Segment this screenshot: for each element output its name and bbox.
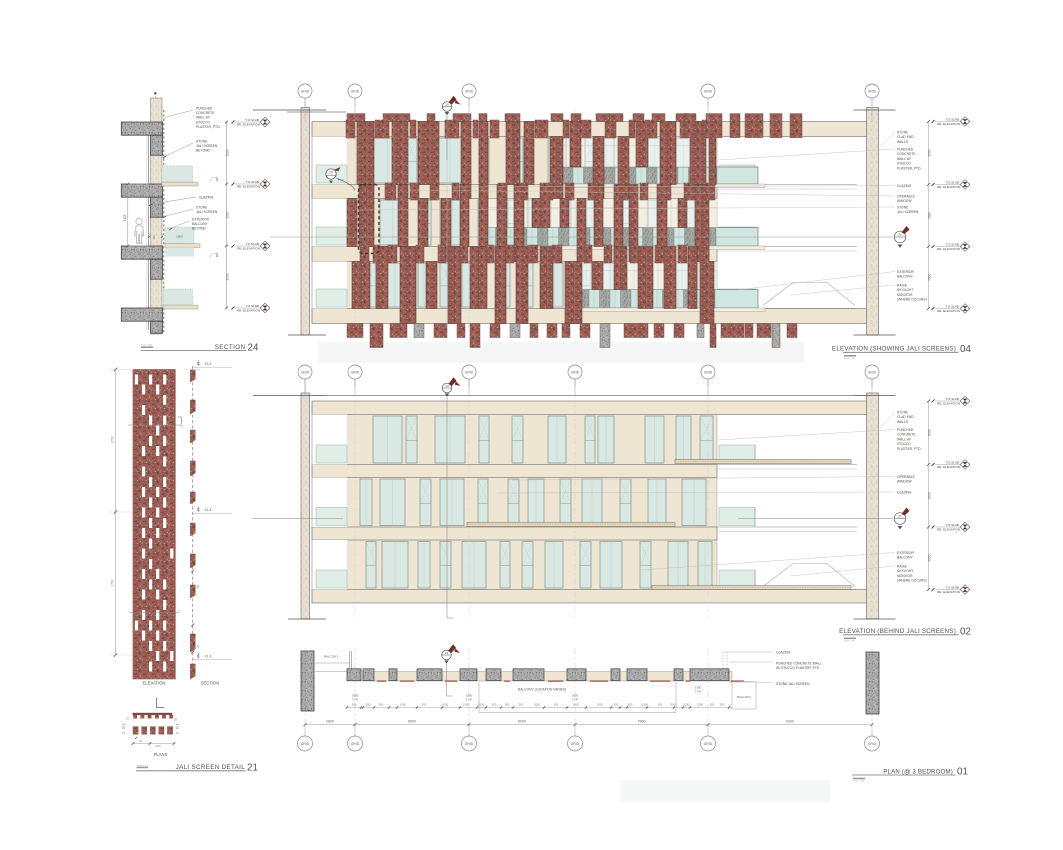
svg-text:PUNCHED: PUNCHED bbox=[196, 107, 213, 111]
svg-text:SKYLIGHT: SKYLIGHT bbox=[897, 288, 913, 292]
svg-text:500: 500 bbox=[519, 703, 524, 707]
svg-text:EXTERIOR: EXTERIOR bbox=[897, 270, 914, 274]
svg-text:349: 349 bbox=[152, 235, 156, 240]
svg-text:GLAZING: GLAZING bbox=[897, 491, 912, 495]
svg-text:RE: ELEVATION: RE: ELEVATION bbox=[937, 590, 960, 594]
svg-text:(WHERE OCCURS): (WHERE OCCURS) bbox=[897, 298, 927, 302]
svg-text:OPERABLE: OPERABLE bbox=[897, 475, 916, 479]
svg-text:500: 500 bbox=[554, 703, 559, 707]
svg-text:GRID: GRID bbox=[351, 89, 360, 93]
svg-text:SECTION: SECTION bbox=[215, 344, 246, 351]
svg-text:GRID: GRID bbox=[351, 370, 360, 374]
svg-text:PLASTER, PTD.: PLASTER, PTD. bbox=[897, 447, 921, 451]
svg-text:21: 21 bbox=[898, 233, 902, 237]
svg-text:(WHERE OCCURS): (WHERE OCCURS) bbox=[897, 579, 927, 583]
svg-text:21: 21 bbox=[898, 515, 902, 519]
svg-text:T.O.SLAB: T.O.SLAB bbox=[945, 242, 959, 246]
svg-text:GRID: GRID bbox=[704, 742, 713, 746]
svg-text:25: 25 bbox=[126, 717, 130, 721]
svg-text:24: 24 bbox=[248, 342, 259, 353]
svg-text:3500: 3500 bbox=[225, 149, 229, 156]
svg-text:O.J.: O.J. bbox=[122, 723, 126, 729]
svg-text:2800: 2800 bbox=[326, 719, 334, 723]
svg-text:500: 500 bbox=[628, 703, 633, 707]
svg-text:24: 24 bbox=[445, 384, 449, 388]
svg-text:1500: 1500 bbox=[463, 703, 469, 707]
svg-text:3500: 3500 bbox=[928, 274, 932, 281]
svg-text:04: 04 bbox=[960, 344, 971, 355]
svg-text:1000: 1000 bbox=[597, 703, 603, 707]
svg-text:BEYOND: BEYOND bbox=[196, 149, 211, 153]
svg-text:3500: 3500 bbox=[928, 212, 932, 219]
svg-text:1500: 1500 bbox=[697, 703, 703, 707]
svg-text:O.J.: O.J. bbox=[176, 723, 180, 729]
svg-text:Scale: 1:50: Scale: 1:50 bbox=[844, 640, 856, 642]
svg-text:T.O.SLAB: T.O.SLAB bbox=[945, 304, 959, 308]
svg-text:01: 01 bbox=[957, 767, 968, 778]
svg-text:500: 500 bbox=[505, 703, 510, 707]
svg-text:T.O.SLAB: T.O.SLAB bbox=[245, 304, 259, 308]
svg-text:W/ STUCCO PLASTER, PTD: W/ STUCCO PLASTER, PTD bbox=[776, 666, 820, 670]
svg-text:GRID: GRID bbox=[571, 742, 580, 746]
svg-text:3500: 3500 bbox=[225, 211, 229, 218]
svg-text:1000: 1000 bbox=[478, 703, 484, 707]
svg-text:GRID: GRID bbox=[465, 370, 474, 374]
svg-text:PUNCHED CONCRETE WALL: PUNCHED CONCRETE WALL bbox=[776, 662, 822, 666]
svg-text:T.O.SLAB: T.O.SLAB bbox=[945, 523, 959, 527]
svg-text:PLASTER, PTD.: PLASTER, PTD. bbox=[196, 125, 220, 129]
svg-text:BALCONY: BALCONY bbox=[324, 655, 338, 659]
svg-text:T.O.SLAB: T.O.SLAB bbox=[245, 180, 259, 184]
svg-text:500: 500 bbox=[366, 703, 371, 707]
svg-text:50: 50 bbox=[196, 584, 200, 588]
svg-text:RAISE: RAISE bbox=[897, 284, 908, 288]
svg-text:25: 25 bbox=[329, 171, 333, 175]
svg-text:WALLS: WALLS bbox=[897, 140, 909, 144]
svg-text:500: 500 bbox=[379, 703, 384, 707]
svg-text:TYP.: TYP. bbox=[466, 697, 472, 701]
svg-text:24: 24 bbox=[445, 103, 449, 107]
svg-text:CLAD END: CLAD END bbox=[897, 135, 914, 139]
svg-text:STUCCO: STUCCO bbox=[897, 162, 911, 166]
svg-text:RE: ELEVATION: RE: ELEVATION bbox=[237, 123, 260, 127]
svg-text:MONITOR: MONITOR bbox=[897, 293, 913, 297]
svg-text:BEYOND: BEYOND bbox=[192, 227, 207, 231]
svg-text:GRID: GRID bbox=[351, 742, 360, 746]
svg-text:WALL W/: WALL W/ bbox=[897, 157, 911, 161]
svg-text:GRID: GRID bbox=[571, 370, 580, 374]
svg-text:1000: 1000 bbox=[400, 703, 406, 707]
svg-text:Scale: 1:50: Scale: 1:50 bbox=[844, 358, 856, 360]
svg-text:OPERABLE: OPERABLE bbox=[897, 195, 916, 199]
svg-text:SECTION: SECTION bbox=[201, 681, 220, 686]
svg-text:500: 500 bbox=[658, 703, 663, 707]
svg-text:ELEVATION (BEHIND JALI SCREENS: ELEVATION (BEHIND JALI SCREENS) bbox=[839, 628, 956, 635]
svg-text:JALI SCREEN: JALI SCREEN bbox=[196, 144, 218, 148]
svg-text:500: 500 bbox=[155, 744, 160, 748]
svg-text:1500: 1500 bbox=[642, 703, 648, 707]
svg-text:500: 500 bbox=[710, 703, 715, 707]
svg-text:WALL W/: WALL W/ bbox=[897, 437, 911, 441]
svg-text:1750: 1750 bbox=[110, 579, 114, 587]
svg-text:RE: ELEVATION: RE: ELEVATION bbox=[237, 185, 260, 189]
svg-text:25: 25 bbox=[196, 644, 200, 648]
svg-text:RAISE: RAISE bbox=[897, 565, 908, 569]
svg-text:O.J.: O.J. bbox=[205, 361, 212, 366]
svg-text:21: 21 bbox=[247, 763, 258, 774]
svg-text:GRID: GRID bbox=[868, 742, 877, 746]
svg-text:T.O.SLAB: T.O.SLAB bbox=[245, 118, 259, 122]
svg-text:MONITOR: MONITOR bbox=[897, 574, 913, 578]
svg-text:Scale: 1:10: Scale: 1:10 bbox=[137, 765, 149, 767]
svg-text:STONE: STONE bbox=[897, 131, 909, 135]
svg-text:9300: 9300 bbox=[786, 719, 794, 723]
svg-text:6500: 6500 bbox=[408, 719, 416, 723]
svg-text:EXTERIOR: EXTERIOR bbox=[897, 551, 914, 555]
svg-text:GRID: GRID bbox=[301, 89, 310, 93]
svg-text:GRID: GRID bbox=[704, 370, 713, 374]
svg-text:PUNCHED: PUNCHED bbox=[897, 148, 914, 152]
svg-text:WALL W/: WALL W/ bbox=[196, 116, 210, 120]
svg-text:500: 500 bbox=[720, 703, 725, 707]
svg-text:CONCRETE: CONCRETE bbox=[897, 433, 916, 437]
svg-text:RE: ELEVATION: RE: ELEVATION bbox=[937, 528, 960, 532]
svg-text:02: 02 bbox=[960, 627, 971, 638]
svg-text:500: 500 bbox=[614, 703, 619, 707]
svg-text:STONE: STONE bbox=[897, 206, 909, 210]
svg-text:T.O.SLAB: T.O.SLAB bbox=[945, 117, 959, 121]
svg-text:GRID: GRID bbox=[868, 370, 877, 374]
svg-text:C: C bbox=[197, 361, 200, 366]
svg-text:SKYLIGHT: SKYLIGHT bbox=[897, 569, 913, 573]
svg-text:STUCCO: STUCCO bbox=[196, 120, 210, 124]
svg-text:RE: ELEVATION: RE: ELEVATION bbox=[937, 185, 960, 189]
svg-text:BALCONY (LOCATION VARIES): BALCONY (LOCATION VARIES) bbox=[518, 688, 566, 692]
svg-text:RE: ELEVATION: RE: ELEVATION bbox=[237, 309, 260, 313]
svg-text:3500: 3500 bbox=[928, 429, 932, 436]
svg-text:3500: 3500 bbox=[928, 554, 932, 561]
svg-text:JALI SCREEN: JALI SCREEN bbox=[897, 210, 919, 214]
svg-text:C: C bbox=[197, 654, 200, 659]
svg-text:WINDOW: WINDOW bbox=[897, 199, 912, 203]
svg-text:T.O.SLAB: T.O.SLAB bbox=[945, 585, 959, 589]
svg-text:TYP.: TYP. bbox=[572, 697, 578, 701]
svg-text:T.O.SLAB: T.O.SLAB bbox=[245, 242, 259, 246]
svg-text:3500: 3500 bbox=[928, 149, 932, 156]
svg-text:Scale: 1:50: Scale: 1:50 bbox=[141, 345, 153, 347]
svg-text:PLAN (@ 3 BEDROOM): PLAN (@ 3 BEDROOM) bbox=[883, 768, 953, 775]
svg-text:WINDOW: WINDOW bbox=[897, 480, 912, 484]
svg-text:O.J.: O.J. bbox=[205, 507, 212, 512]
svg-text:500: 500 bbox=[492, 703, 497, 707]
svg-text:CONCRETE: CONCRETE bbox=[897, 152, 916, 156]
svg-text:3500: 3500 bbox=[928, 492, 932, 499]
svg-text:PLANS: PLANS bbox=[154, 752, 168, 757]
svg-text:ELEVATION: ELEVATION bbox=[143, 681, 166, 686]
svg-text:3500: 3500 bbox=[225, 273, 229, 280]
svg-text:STUCCO: STUCCO bbox=[897, 442, 911, 446]
svg-text:1000: 1000 bbox=[683, 703, 689, 707]
svg-text:1800: 1800 bbox=[176, 235, 183, 239]
svg-text:GLAZING: GLAZING bbox=[776, 651, 791, 655]
svg-text:GRID: GRID bbox=[704, 89, 713, 93]
svg-text:GRID: GRID bbox=[868, 89, 877, 93]
svg-text:PLASTER, PTD.: PLASTER, PTD. bbox=[897, 166, 921, 170]
svg-text:3000: 3000 bbox=[573, 703, 579, 707]
svg-text:STONE: STONE bbox=[897, 411, 909, 415]
svg-text:GLAZING: GLAZING bbox=[897, 184, 912, 188]
svg-text:RE: ELEVATION: RE: ELEVATION bbox=[937, 465, 960, 469]
svg-text:RE: ELEVATION: RE: ELEVATION bbox=[937, 402, 960, 406]
svg-text:500: 500 bbox=[422, 703, 427, 707]
svg-text:BALCONY: BALCONY bbox=[897, 275, 914, 279]
svg-text:GRID: GRID bbox=[465, 89, 474, 93]
svg-text:O.J.: O.J. bbox=[205, 654, 212, 659]
svg-text:T.O.SLAB: T.O.SLAB bbox=[945, 180, 959, 184]
svg-text:GRID: GRID bbox=[465, 742, 474, 746]
svg-text:1750: 1750 bbox=[110, 436, 114, 444]
svg-text:1000: 1000 bbox=[442, 703, 448, 707]
svg-text:GRID: GRID bbox=[301, 742, 310, 746]
svg-text:JALI SCREEN DETAIL: JALI SCREEN DETAIL bbox=[176, 764, 246, 771]
svg-text:6000: 6000 bbox=[518, 719, 526, 723]
svg-text:WALLS: WALLS bbox=[897, 420, 909, 424]
svg-text:CLAD END: CLAD END bbox=[897, 415, 914, 419]
svg-text:PUNCHED: PUNCHED bbox=[897, 428, 914, 432]
svg-text:7500: 7500 bbox=[638, 719, 646, 723]
svg-text:EXTERIOR: EXTERIOR bbox=[192, 218, 209, 222]
svg-text:BALCONY: BALCONY bbox=[897, 556, 914, 560]
svg-text:TYP.: TYP. bbox=[352, 697, 358, 701]
svg-text:STONE JALI SCREEN: STONE JALI SCREEN bbox=[776, 682, 810, 686]
svg-text:Scale: 1:50: Scale: 1:50 bbox=[853, 781, 865, 783]
svg-text:GRID: GRID bbox=[301, 370, 310, 374]
svg-text:T.O.SLAB: T.O.SLAB bbox=[945, 460, 959, 464]
svg-text:RE: ELEVATION: RE: ELEVATION bbox=[237, 247, 260, 251]
svg-text:BALCONY: BALCONY bbox=[737, 695, 751, 699]
svg-text:24: 24 bbox=[445, 651, 449, 655]
svg-text:3125: 3125 bbox=[123, 214, 127, 221]
svg-text:50: 50 bbox=[139, 739, 143, 743]
svg-text:RE: ELEVATION: RE: ELEVATION bbox=[937, 247, 960, 251]
svg-text:C: C bbox=[197, 507, 200, 512]
svg-text:RE: ELEVATION: RE: ELEVATION bbox=[937, 309, 960, 313]
svg-text:CONCRETE: CONCRETE bbox=[196, 111, 215, 115]
svg-text:500: 500 bbox=[352, 703, 357, 707]
svg-text:T.O.SLAB: T.O.SLAB bbox=[945, 397, 959, 401]
svg-text:TYP.: TYP. bbox=[695, 689, 701, 693]
svg-text:STONE: STONE bbox=[196, 206, 208, 210]
svg-text:JALI SCREEN: JALI SCREEN bbox=[196, 210, 218, 214]
svg-text:GLAZING: GLAZING bbox=[199, 195, 214, 199]
svg-text:BALCONY: BALCONY bbox=[192, 222, 209, 226]
svg-text:1000: 1000 bbox=[534, 703, 540, 707]
svg-text:STONE: STONE bbox=[196, 140, 208, 144]
svg-text:RE: ELEVATION: RE: ELEVATION bbox=[937, 122, 960, 126]
svg-text:500: 500 bbox=[671, 703, 676, 707]
svg-text:ELEVATION (SHOWING JALI SCREEN: ELEVATION (SHOWING JALI SCREENS) bbox=[832, 346, 956, 353]
